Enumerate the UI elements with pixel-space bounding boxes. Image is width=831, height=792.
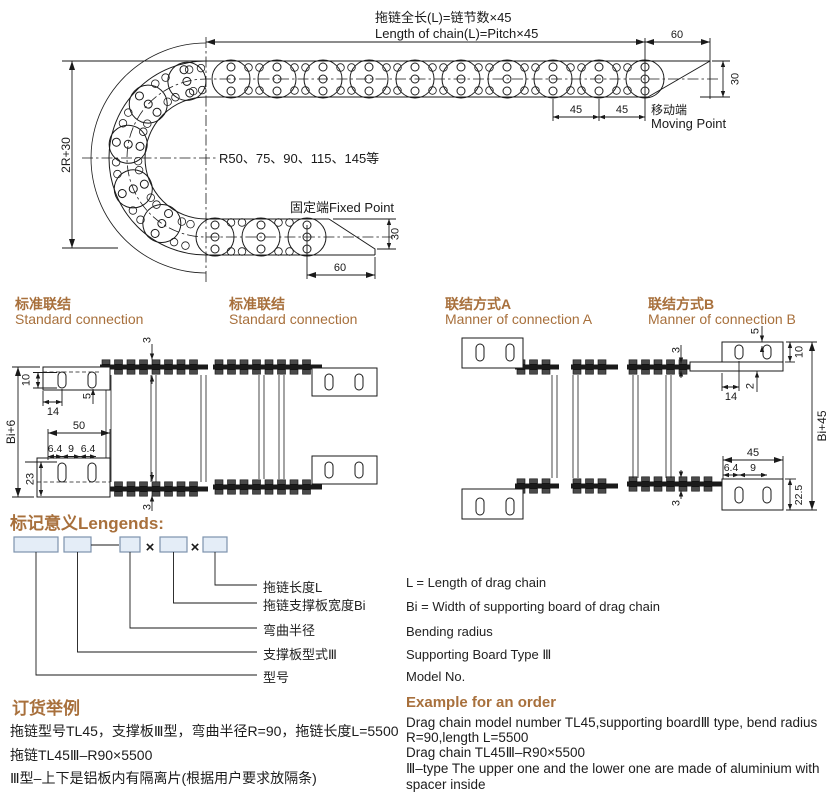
top-mount-plate [43,367,110,390]
link-verticals [106,375,206,482]
standard-connection-2-drawing [213,360,377,494]
link-bars [100,360,208,496]
bottom-mount-plate [37,458,110,497]
dim-30-fixed: 30 [390,228,402,240]
dim-3-top: 3 [142,337,154,343]
dim-5: 5 [82,393,94,399]
plate-slot [763,345,771,359]
dim-bi45: Bi+45 [815,410,829,441]
link-bars [213,360,322,494]
dim-3-bottom: 3 [671,500,683,506]
section-title-std1-en: Standard connection [15,311,143,327]
dim-64-b: 6.4 [81,443,96,455]
top-plate-flange [690,362,783,371]
dim-10: 10 [794,346,806,358]
legend-item-boardtype-en: Supporting Board Type Ⅲ [406,647,551,663]
order-example-heading-en: Example for an order [406,694,556,711]
section-title-std2-en: Standard connection [229,311,357,327]
plate-slot [506,344,514,361]
plate-slot [58,463,66,482]
plate-slot [355,374,363,390]
plate-slot [355,462,363,478]
plate-slot [58,372,66,388]
dim-5: 5 [750,328,762,334]
length-dimension: 拖链全长(L)=链节数×45 Length of chain(L)=Pitch×… [206,10,710,121]
dim-14: 14 [725,391,737,403]
legend-item-model-en: Model No. [406,669,465,684]
link-verticals [552,375,578,478]
dim-23: 23 [25,473,37,485]
bottom-mount-plate [722,479,783,510]
order-example-line2-cn: 拖链TL45Ⅲ–R90×5500 [10,745,152,765]
legend-item-boardtype-cn: 支撑板型式Ⅲ [263,644,337,663]
plate-slot [88,372,96,388]
standard-connection-1-drawing: 3 10 5 14 Bi+6 50 [4,337,208,511]
dim-60-top: 60 [671,29,683,41]
order-example-line3-cn: Ⅲ型–上下是铝板内有隔离片(根据用户要求放隔条) [10,768,317,788]
bottom-mount-plate [312,456,377,484]
moving-end-30-dimension: 30 [700,61,742,97]
plate-slot [506,498,514,515]
length-box [203,537,227,552]
bend-radius-note: R50、75、90、115、145等 [219,151,379,166]
plate-slot [735,487,743,503]
plate-slot [325,374,333,390]
moving-point-label-en: Moving Point [651,116,727,131]
dim-3-top: 3 [671,347,683,353]
order-example-line4-en: Ⅲ–type The upper one and the lower one a… [406,761,820,777]
legend-heading: 标记意义Lengends: [10,509,164,534]
dim-30-moving: 30 [730,73,742,85]
dim-60-fixed: 60 [334,262,346,274]
legend-item-radius-en: Bending radius [406,624,493,639]
order-example-line5-en: spacer inside [406,777,486,792]
catalog-page: 拖链全长(L)=链节数×45 Length of chain(L)=Pitch×… [0,0,831,792]
order-example-line1-cn: 拖链型号TL45，支撑板Ⅲ型，弯曲半径R=90，拖链长度L=5500 [10,721,399,741]
chain-centerline [127,79,718,237]
top-mount-plate [722,342,783,362]
dim-45-b: 45 [616,104,628,116]
legend-item-length-cn: 拖链长度L [263,577,322,596]
legend-item-width-cn: 拖链支撑板宽度Bi [263,595,366,614]
legend-item-model-cn: 型号 [263,667,289,686]
manner-connection-b-drawing: 5 3 10 2 14 45 6.4 9 [627,326,829,510]
dim-9: 9 [68,443,74,455]
dim-9: 9 [750,462,756,474]
order-example-line3-en: Drag chain TL45Ⅲ–R90×5500 [406,745,585,761]
dim-64-a: 6.4 [48,443,63,455]
height-dimension: 2R+30 [59,61,207,248]
manner-connection-a-drawing [462,338,618,519]
legend-item-width-en: Bi = Width of supporting board of drag c… [406,599,660,614]
dim-225: 22.5 [793,485,805,506]
dim-45: 45 [747,447,759,459]
legend-item-radius-cn: 弯曲半径 [263,620,315,639]
dim-14: 14 [47,406,59,418]
plate-slot [763,487,771,503]
link-verticals [259,375,284,479]
order-example-heading-cn: 订货举例 [12,694,80,719]
legend-item-length-en: L = Length of drag chain [406,575,546,590]
dim-2r30: 2R+30 [59,137,73,173]
board-type-box [64,537,91,552]
multiply-sign: × [146,539,155,556]
dim-64: 6.4 [724,462,739,474]
fixed-end-60-dimension: 60 [307,225,375,279]
dim-45-a: 45 [570,104,582,116]
dim-bi6: Bi+6 [4,420,18,445]
dim-10: 10 [21,374,33,386]
fixed-point-label: 固定端Fixed Point [290,200,394,215]
multiply-sign: × [191,539,200,556]
dim-50: 50 [73,420,85,432]
plate-slot [735,345,743,359]
pitch-dimensions: 45 45 [553,99,645,121]
legend-connector-lines [36,552,257,675]
order-example-line1-en: Drag chain model number TL45,supporting … [406,715,817,731]
chain-length-formula-en: Length of chain(L)=Pitch×45 [375,26,538,41]
link-bars [627,360,722,491]
link-verticals [633,375,671,478]
plate-slot [325,462,333,478]
section-title-connB-en: Manner of connection B [648,311,796,327]
width-box [160,537,187,552]
plate-slot [476,344,484,361]
radius-box [120,537,140,552]
plate-slot [476,498,484,515]
order-example-line2-en: R=90,length L=5500 [406,730,528,745]
plate-slot [88,463,96,482]
model-code-box [14,537,58,552]
legend-code-diagram: × × [14,537,257,675]
chain-length-formula-cn: 拖链全长(L)=链节数×45 [375,10,512,25]
chain-links [106,58,664,256]
dim-2: 2 [745,383,757,389]
link-bars [515,360,618,493]
moving-point-label-cn: 移动端 [651,103,687,117]
section-title-connA-en: Manner of connection A [445,311,592,327]
chain-overview-drawing: 拖链全长(L)=链节数×45 Length of chain(L)=Pitch×… [59,10,742,283]
top-mount-plate [312,368,377,396]
